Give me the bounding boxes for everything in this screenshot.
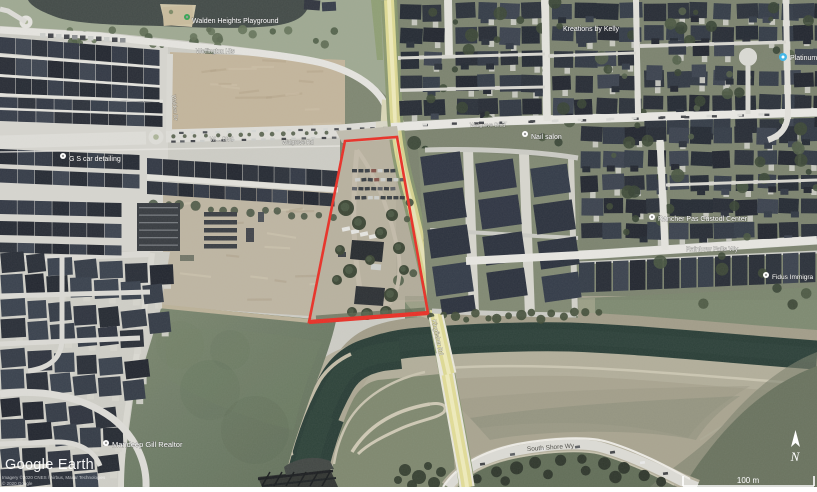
svg-text:G S car detailing: G S car detailing [69,156,121,163]
svg-text:Nail salon: Nail salon [531,134,562,141]
svg-text:Rancher Pas Custodl Center: Rancher Pas Custodl Center [658,216,748,223]
svg-text:Rainbow Falls Wy: Rainbow Falls Wy [686,246,739,253]
svg-text:Walden Heights Playground: Walden Heights Playground [192,18,279,25]
svg-text:Walgrove Rd: Walgrove Rd [282,140,314,146]
svg-text:100 m: 100 m [737,476,760,485]
svg-text:Platinum: Platinum [790,55,817,62]
svg-text:Fidus Immigra: Fidus Immigra [772,274,814,281]
svg-text:© 2020 Google: © 2020 Google [2,480,33,486]
svg-text:N: N [790,449,801,464]
svg-text:Walgrove Blvd: Walgrove Blvd [470,123,505,129]
svg-text:Wellington Hts: Wellington Hts [196,49,235,55]
svg-text:Google Earth: Google Earth [5,457,94,473]
svg-text:Kreations by Kelly: Kreations by Kelly [563,26,620,33]
svg-text:Imagery ©2020 CNES / Airbus, M: Imagery ©2020 CNES / Airbus, Maxar Techn… [2,474,106,480]
svg-text:W.... Blvd: W.... Blvd [210,137,233,143]
svg-text:Mandeep Gill Realtor: Mandeep Gill Realtor [112,440,183,449]
